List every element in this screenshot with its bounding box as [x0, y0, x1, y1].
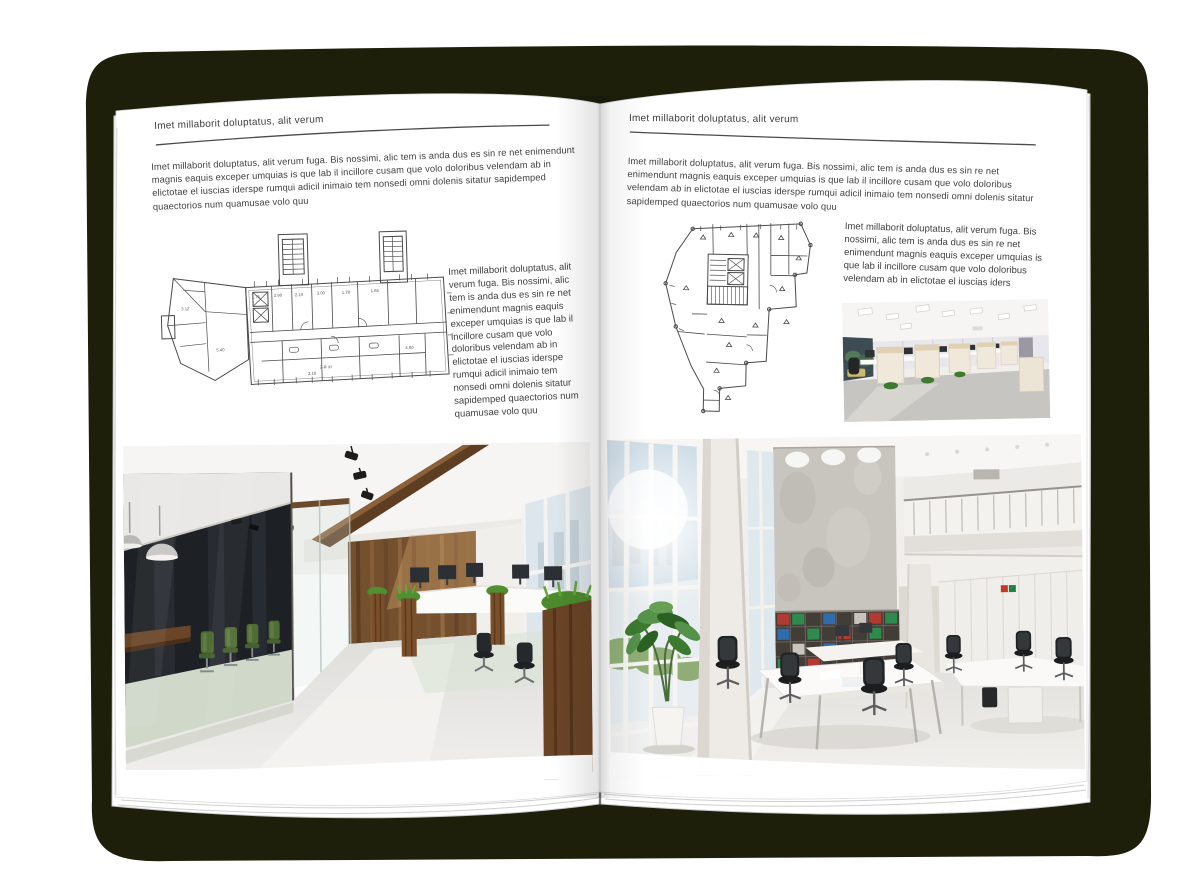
small-office-photo-art: [842, 299, 1050, 422]
svg-text:4.00: 4.00: [405, 345, 414, 350]
right-small-office-photo: [842, 299, 1050, 422]
svg-text:1.75: 1.75: [252, 294, 261, 299]
svg-text:3.12: 3.12: [181, 306, 190, 311]
floor-plan-left-drawing: 1.75 2.90 2.10 3.00 1.78 1.65 5.40 4.00 …: [158, 223, 455, 423]
right-page-header: Imet millaborit doluptatus, alit verum: [629, 113, 1039, 146]
left-office-photo: [123, 442, 593, 783]
left-photo-bottom-curl: [126, 754, 593, 783]
right-header-rule: [629, 129, 1037, 146]
svg-text:3.00: 3.00: [317, 290, 326, 295]
left-office-photo-art: [123, 442, 593, 783]
svg-text:1.78: 1.78: [342, 290, 351, 295]
right-photo-bottom-curl: [611, 742, 1085, 777]
right-floor-plan: [647, 213, 847, 431]
svg-text:2.90: 2.90: [274, 293, 283, 298]
room-markers: [681, 232, 801, 401]
right-office-photo-art: [607, 434, 1085, 777]
column-markers: [661, 220, 812, 415]
magazine-mockup: Imet millaborit doluptatus, alit verum I…: [0, 0, 1200, 891]
svg-text:2-й эт: 2-й эт: [320, 363, 333, 369]
floor-plan-right-drawing: [647, 213, 847, 431]
svg-text:5.40: 5.40: [216, 347, 225, 352]
svg-text:2.10: 2.10: [308, 371, 317, 376]
svg-text:2.10: 2.10: [295, 292, 304, 297]
left-side-paragraph: Imet millaborit doluptatus, alit verum f…: [448, 261, 582, 421]
right-header-text: Imet millaborit doluptatus, alit verum: [629, 113, 1039, 127]
right-side-paragraph: Imet millaborit doluptatus, alit verum f…: [843, 221, 1050, 292]
right-office-photo: [607, 434, 1085, 777]
svg-text:1.65: 1.65: [371, 288, 380, 293]
left-floor-plan: 1.75 2.90 2.10 3.00 1.78 1.65 5.40 4.00 …: [158, 223, 455, 423]
